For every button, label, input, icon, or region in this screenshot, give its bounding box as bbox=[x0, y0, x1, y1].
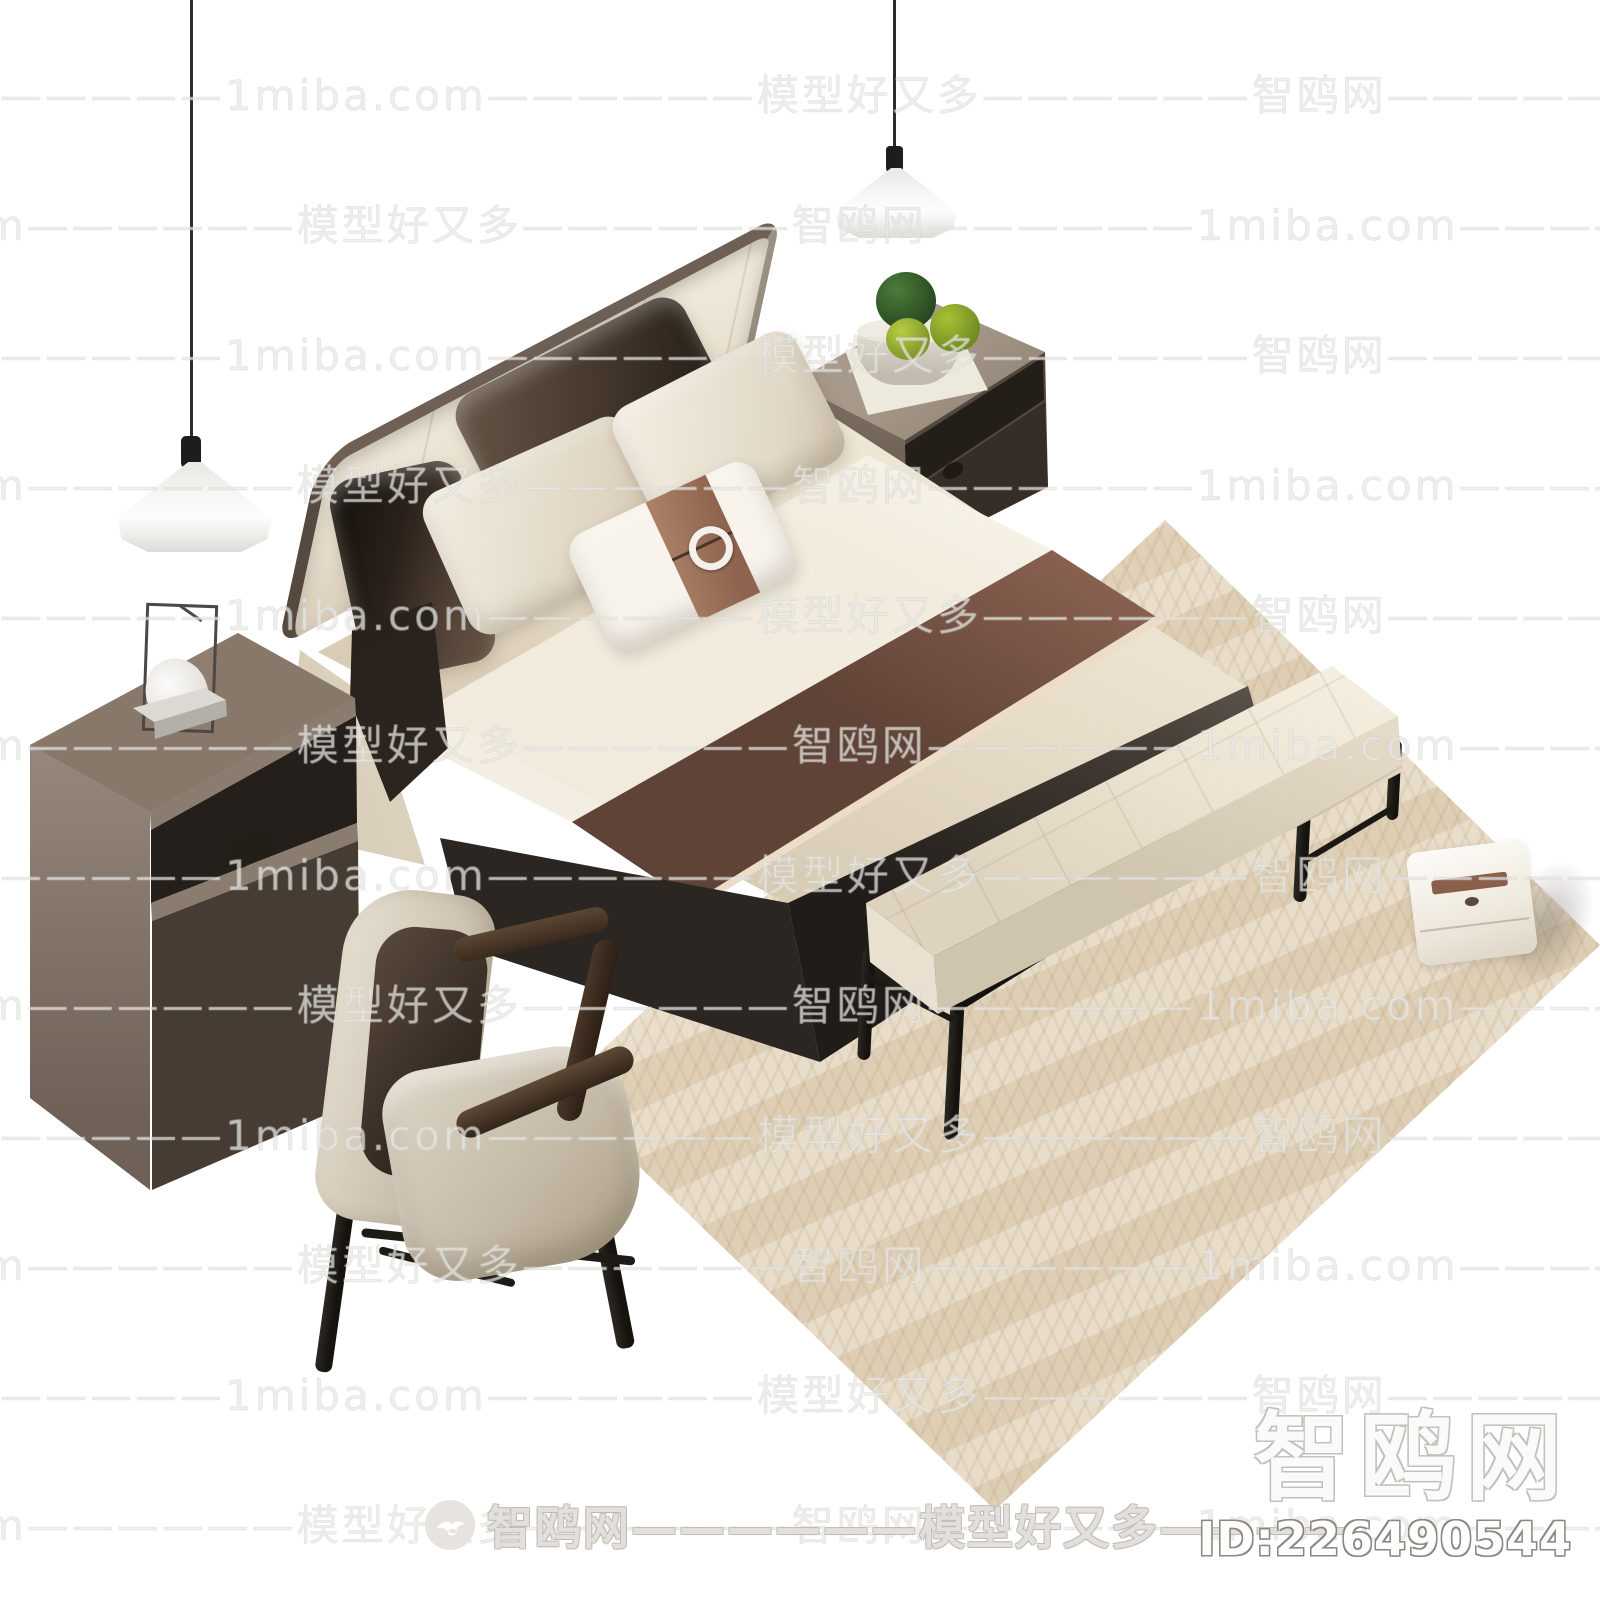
watermark-row: 智鸥网——————1miba.com——————模型好又多——————智鸥网——… bbox=[0, 192, 1600, 253]
watermark-row: 智鸥网——————1miba.com——————模型好又多——————智鸥网——… bbox=[0, 1492, 1600, 1553]
brand-block: 智鸥网 ID:226490544 bbox=[1198, 1410, 1572, 1566]
model-id: ID:226490544 bbox=[1198, 1512, 1572, 1566]
pendant-left-shade bbox=[117, 462, 272, 552]
moss-ball-green bbox=[930, 304, 980, 352]
decor-box-clasp bbox=[1464, 897, 1479, 908]
decor-box-seam bbox=[1420, 917, 1530, 932]
footer-brand: 智鸥网——————模型好又多———— bbox=[425, 1492, 1351, 1558]
brand-site-name: 智鸥网 bbox=[1198, 1410, 1572, 1506]
decor-box-body bbox=[1406, 839, 1539, 967]
pendant-right-cord bbox=[893, 0, 896, 150]
watermark-row: 智鸥网——————1miba.com——————模型好又多——————智鸥网——… bbox=[0, 1362, 1600, 1423]
logo-circle bbox=[425, 1500, 475, 1550]
moss-ball-yellow bbox=[886, 318, 930, 360]
pendant-right-shade bbox=[835, 168, 957, 238]
pendant-left-cord bbox=[190, 0, 193, 442]
watermark-row: 智鸥网——————1miba.com——————模型好又多——————智鸥网——… bbox=[0, 62, 1600, 123]
decor-box-strap bbox=[1431, 871, 1509, 895]
furniture-render-scene: 智鸥网——————1miba.com——————模型好又多——————智鸥网——… bbox=[0, 0, 1600, 1600]
footer-brand-text: 智鸥网——————模型好又多———— bbox=[487, 1492, 1351, 1558]
seagull-logo-icon bbox=[433, 1510, 467, 1540]
